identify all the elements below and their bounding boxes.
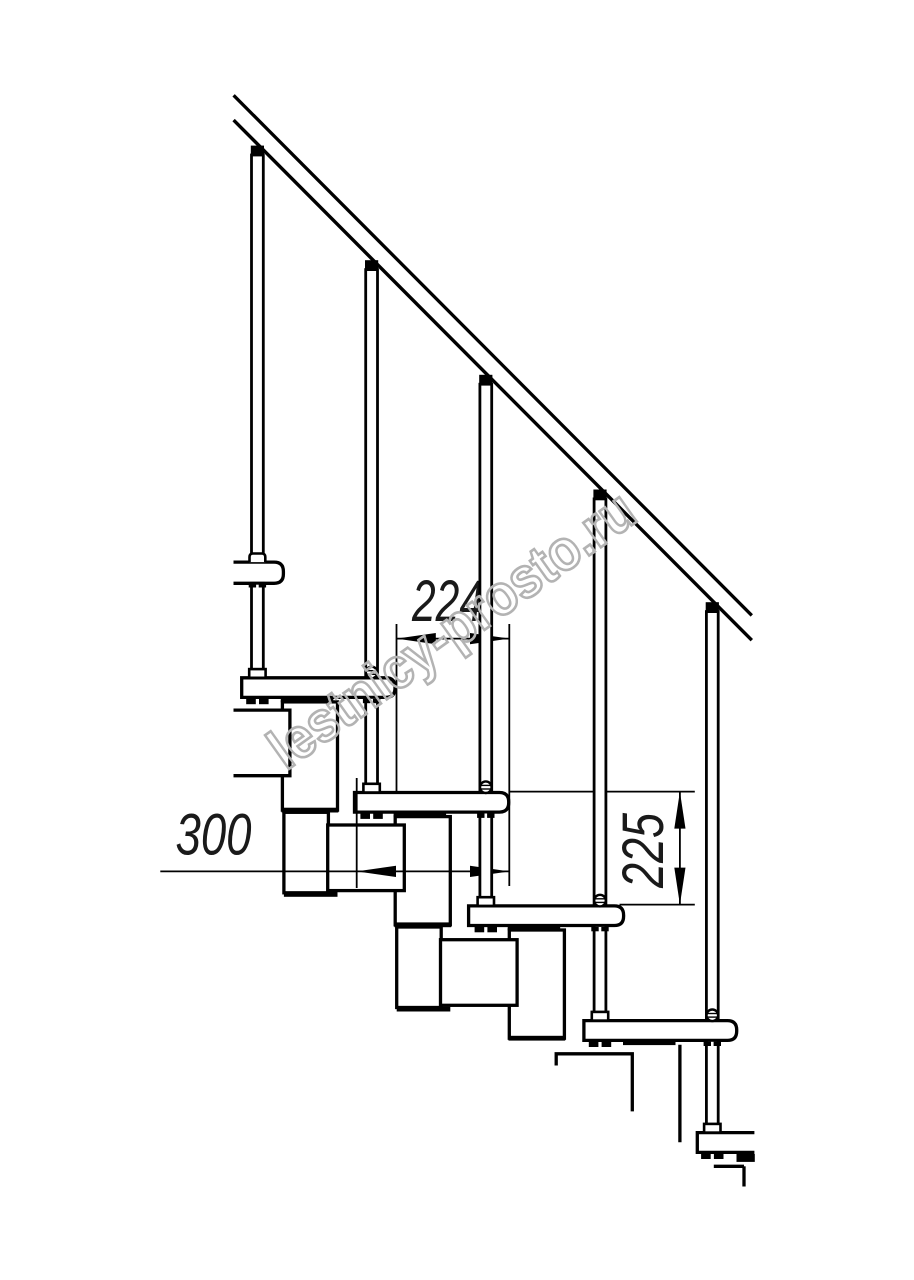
svg-text:lestnicy-prosto.ru: lestnicy-prosto.ru (256, 478, 647, 782)
svg-text:225: 225 (611, 812, 676, 888)
svg-text:300: 300 (176, 803, 252, 868)
